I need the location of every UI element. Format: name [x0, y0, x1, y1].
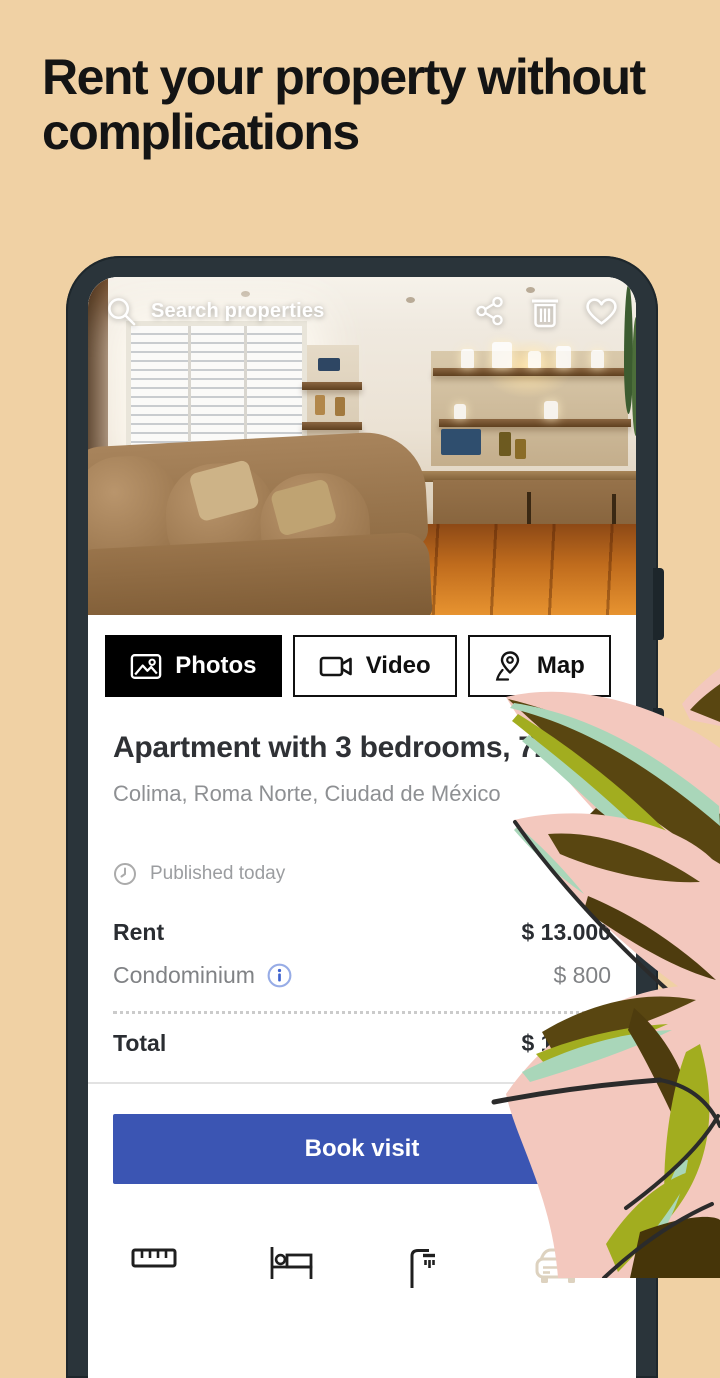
tab-video[interactable]: Video [293, 635, 457, 697]
phone-mockup: Search properties [66, 256, 658, 1378]
amenities-row [113, 1246, 611, 1288]
total-value: $ 13.800 [521, 1030, 611, 1057]
solid-divider [88, 1082, 636, 1084]
total-label: Total [113, 1030, 166, 1057]
rent-label: Rent [113, 919, 164, 946]
listing-card: Photos Video Map [88, 615, 636, 1378]
condominium-row: Condominium $ 800 [113, 962, 611, 989]
tab-photos[interactable]: Photos [105, 635, 282, 697]
photo-bowl [318, 358, 340, 371]
photo-bottle [515, 439, 526, 459]
trash-icon[interactable] [530, 295, 560, 328]
listing-title: Apartment with 3 bedrooms, 72m² [113, 731, 611, 765]
condominium-label: Condominium [113, 962, 255, 989]
tab-label: Video [366, 652, 431, 680]
photo-decor [315, 395, 325, 415]
listing-location: Colima, Roma Norte, Ciudad de México [113, 781, 611, 807]
media-tabs: Photos Video Map [105, 635, 611, 697]
photo-bottle [499, 432, 511, 456]
page-title: Rent your property without complications [42, 50, 702, 160]
tab-map[interactable]: Map [468, 635, 611, 697]
bed-icon [268, 1246, 314, 1280]
tab-label: Map [537, 652, 585, 680]
map-pin-icon [494, 650, 524, 682]
phone-volume-button [653, 568, 664, 640]
search-icon[interactable] [106, 296, 137, 327]
rent-value: $ 13.000 [521, 919, 611, 946]
condominium-value: $ 800 [553, 962, 611, 989]
book-visit-button[interactable]: Book visit [113, 1114, 611, 1184]
ruler-icon [131, 1246, 177, 1270]
published-row: Published today [113, 862, 611, 886]
clock-icon [113, 862, 137, 886]
heart-icon[interactable] [585, 297, 618, 326]
phone-screen: Search properties [88, 277, 636, 1378]
photo-shelf [302, 422, 362, 430]
photo-shelf [439, 419, 631, 427]
share-icon[interactable] [475, 296, 505, 326]
search-input[interactable]: Search properties [151, 300, 475, 323]
photos-icon [130, 653, 162, 680]
total-row: Total $ 13.800 [113, 1030, 611, 1057]
car-icon [533, 1246, 583, 1284]
photo-shelf [302, 382, 362, 390]
listing-photo[interactable]: Search properties [88, 277, 636, 615]
info-icon[interactable] [267, 963, 292, 988]
published-label: Published today [150, 863, 285, 885]
photo-toolbar: Search properties [88, 291, 636, 331]
phone-power-button [653, 708, 664, 776]
rent-row: Rent $ 13.000 [113, 919, 611, 946]
tab-label: Photos [175, 652, 256, 680]
shower-icon [406, 1246, 442, 1288]
photo-couch [88, 430, 432, 615]
photo-shelf [433, 368, 630, 376]
video-icon [319, 654, 353, 679]
photo-decor [335, 397, 345, 416]
dotted-divider [113, 1011, 611, 1014]
photo-artwork [441, 429, 481, 455]
